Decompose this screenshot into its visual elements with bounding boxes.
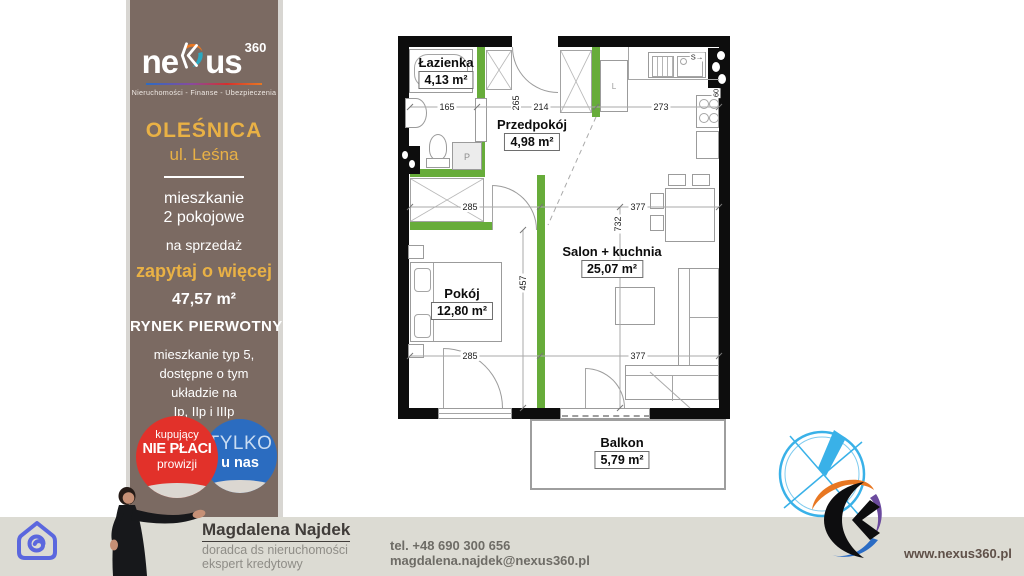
dim-bath-width: 165	[437, 102, 456, 112]
room-label-room: Pokój 12,80 m²	[431, 286, 493, 320]
dim-kitchen-width: 273	[651, 102, 670, 112]
dim-shaft-height: 60	[712, 88, 721, 98]
room-area: 4,98 m²	[504, 133, 559, 151]
room-name: Pokój	[431, 286, 493, 301]
room-area: 5,79 m²	[594, 451, 649, 469]
brand-suffix: us	[205, 43, 242, 80]
listing-sale: na sprzedaż	[130, 237, 278, 253]
agent-name: Magdalena Najdek	[202, 520, 350, 542]
agent-role-1: doradca ds nieruchomości	[202, 543, 348, 557]
listing-area: 47,57 m²	[130, 291, 278, 309]
sidebar-right-edge	[278, 0, 283, 517]
agent-phone: tel. +48 690 300 656	[390, 538, 510, 553]
dim-shaft-label: S→	[690, 53, 705, 62]
room-name: Przedpokój	[497, 117, 567, 132]
listing-cta: zapytaj o więcej	[130, 261, 278, 282]
badge-no-commission-line1: kupujący	[136, 429, 218, 441]
dim-living-width: 377	[628, 202, 647, 212]
listing-type-line1: mieszkanie	[130, 190, 278, 208]
listing-desc-4: Ip, IIp i IIIp	[130, 404, 278, 419]
dim-living-width-2: 377	[628, 351, 647, 361]
dim-hall-width: 214	[531, 102, 550, 112]
room-label-living: Salon + kuchnia 25,07 m²	[562, 244, 661, 278]
brand-360: 360	[245, 40, 267, 55]
room-label-hallway: Przedpokój 4,98 m²	[497, 117, 567, 151]
badge-no-commission: kupujący NIE PŁACI prowizji	[136, 416, 218, 498]
room-name: Balkon	[594, 435, 649, 450]
brand-logo: ne us360	[130, 40, 278, 81]
listing-desc-3: układzie na	[130, 385, 278, 400]
brand-x-icon	[179, 41, 204, 70]
badge-swoosh	[136, 483, 218, 498]
room-area: 4,13 m²	[418, 71, 473, 89]
dim-room-width-2: 285	[460, 351, 479, 361]
room-area: 12,80 m²	[431, 302, 493, 320]
listing-city: OLEŚNICA	[130, 119, 278, 143]
room-name: Salon + kuchnia	[562, 244, 661, 259]
dim-living-height: 732	[613, 214, 623, 233]
listing-market: RYNEK PIERWOTNY	[130, 318, 278, 335]
house-logo-icon	[14, 518, 60, 564]
brand-divider	[146, 83, 262, 85]
room-label-bathroom: Łazienka 4,13 m²	[418, 55, 473, 89]
listing-street: ul. Leśna	[130, 145, 278, 165]
room-label-balcony: Balkon 5,79 m²	[594, 435, 649, 469]
brand-tagline: Nieruchomości - Finanse - Ubezpieczenia	[130, 88, 278, 97]
listing-flyer: ne us360 Nieruchomości - Finanse - Ubezp…	[0, 0, 1024, 576]
listing-type-line2: 2 pokojowe	[130, 209, 278, 227]
listing-desc-1: mieszkanie typ 5,	[130, 347, 278, 362]
brand-prefix: ne	[142, 43, 179, 80]
sidebar-divider	[164, 176, 244, 178]
room-area: 25,07 m²	[581, 260, 643, 278]
agent-email: magdalena.najdek@nexus360.pl	[390, 553, 590, 568]
badge-no-commission-line3: prowizji	[136, 457, 218, 471]
badge-no-commission-line2: NIE PŁACI	[136, 441, 218, 457]
agent-role-2: ekspert kredytowy	[202, 557, 303, 571]
room-name: Łazienka	[418, 55, 473, 70]
brand-k-mark-icon	[806, 476, 890, 564]
dim-room-width: 285	[460, 202, 479, 212]
listing-desc-2: dostępne o tym	[130, 366, 278, 381]
dim-bath-height: 265	[511, 93, 521, 112]
dim-room-height: 457	[518, 273, 528, 292]
footer-website: www.nexus360.pl	[904, 546, 1012, 561]
sidebar: ne us360 Nieruchomości - Finanse - Ubezp…	[130, 0, 278, 517]
agent-photo	[95, 487, 210, 576]
